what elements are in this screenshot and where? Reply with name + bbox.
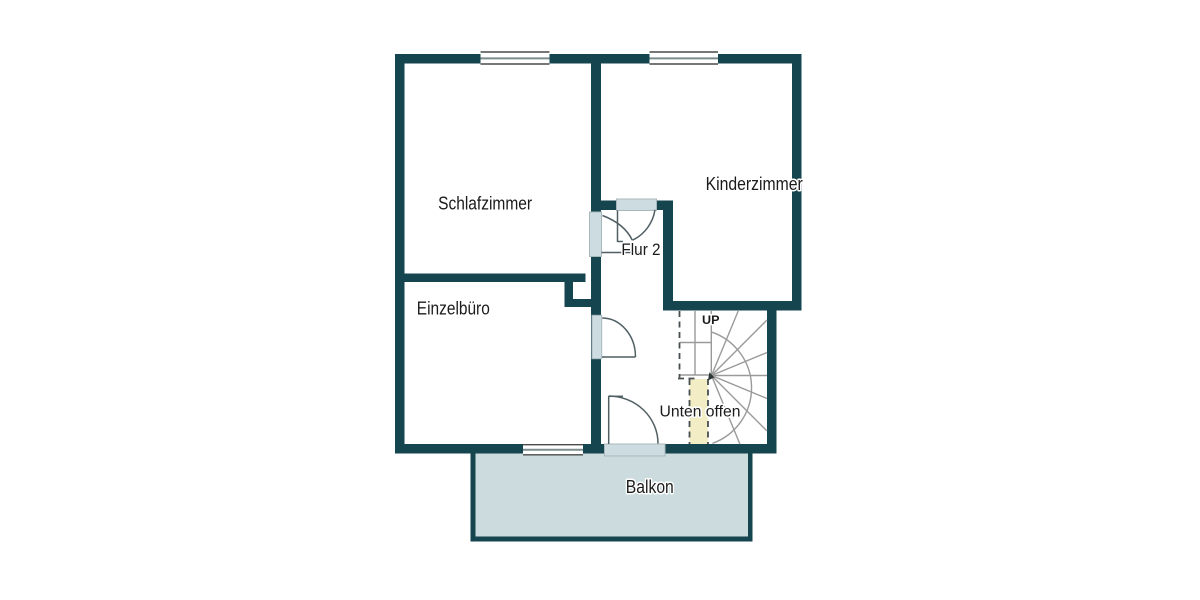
svg-text:Flur 2: Flur 2 (621, 240, 660, 259)
svg-text:Balkon: Balkon (626, 477, 674, 497)
svg-text:Einzelbüro: Einzelbüro (417, 298, 490, 318)
svg-text:UP: UP (702, 315, 720, 327)
svg-text:Schlafzimmer: Schlafzimmer (438, 194, 532, 214)
svg-text:Unten offen: Unten offen (660, 403, 741, 420)
svg-text:Kinderzimmer: Kinderzimmer (706, 174, 803, 194)
